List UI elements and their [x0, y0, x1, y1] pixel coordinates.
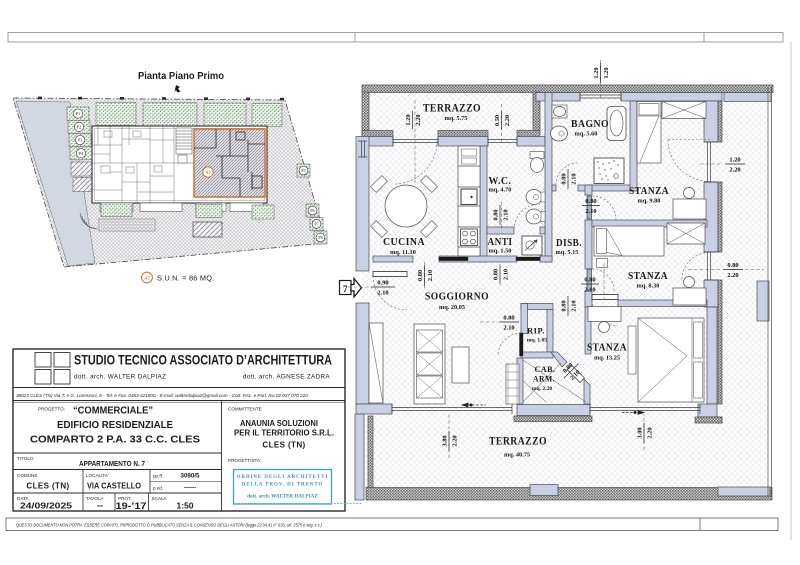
svg-text:2.10: 2.10 — [584, 287, 595, 294]
svg-text:dott. arch. AGNESE ZADRA: dott. arch. AGNESE ZADRA — [243, 374, 331, 381]
svg-text:mq. 1.05: mq. 1.05 — [527, 338, 548, 344]
svg-text:mq. 5.60: mq. 5.60 — [575, 131, 598, 138]
svg-text:0.80: 0.80 — [727, 262, 738, 269]
svg-text:P5: P5 — [301, 168, 305, 173]
svg-text:P7: P7 — [314, 222, 318, 227]
svg-text:1:50: 1:50 — [176, 501, 193, 511]
svg-text:“COMMERCIALE”: “COMMERCIALE” — [73, 406, 153, 417]
svg-text:1.20: 1.20 — [729, 157, 740, 164]
svg-text:24/09/2025: 24/09/2025 — [20, 501, 72, 511]
svg-text:3090/5: 3090/5 — [181, 473, 200, 480]
svg-text:CAB.: CAB. — [535, 364, 556, 374]
svg-text:1.20: 1.20 — [603, 67, 610, 78]
svg-text:P1: P1 — [76, 111, 80, 116]
svg-text:COMMITTENTE: COMMITTENTE — [228, 407, 262, 412]
svg-text:STANZA: STANZA — [629, 185, 669, 197]
svg-text:dott. arch. WALTER DALPIAZ: dott. arch. WALTER DALPIAZ — [247, 494, 318, 500]
svg-text:mq. 8.30: mq. 8.30 — [637, 283, 660, 290]
svg-text:mq. 5.15: mq. 5.15 — [556, 249, 579, 256]
svg-text:--: -- — [97, 501, 103, 511]
svg-text:2.20: 2.20 — [452, 435, 459, 446]
svg-text:0.80: 0.80 — [561, 300, 568, 311]
svg-text:TITOLO: TITOLO — [17, 456, 34, 461]
svg-text:pp.ff.: pp.ff. — [153, 474, 163, 479]
svg-text:BAGNO: BAGNO — [571, 119, 609, 130]
svg-text:0.80: 0.80 — [585, 198, 596, 205]
svg-text:0.80: 0.80 — [417, 270, 424, 281]
svg-text:mq. 13.25: mq. 13.25 — [594, 355, 620, 362]
svg-text:2.20: 2.20 — [504, 115, 511, 126]
svg-text:2.10: 2.10 — [571, 173, 578, 184]
svg-text:2.10: 2.10 — [503, 269, 510, 280]
svg-text:mq. 4.70: mq. 4.70 — [489, 187, 512, 194]
svg-text:ARM.: ARM. — [533, 374, 555, 384]
svg-text:ANAUNIA SOLUZIONI: ANAUNIA SOLUZIONI — [240, 419, 318, 428]
svg-text:P2: P2 — [77, 124, 81, 129]
svg-text:mq. 2.20: mq. 2.20 — [532, 386, 553, 392]
svg-text:2.10: 2.10 — [377, 290, 388, 297]
svg-text:2.20: 2.20 — [647, 427, 654, 438]
svg-text:1.20: 1.20 — [593, 67, 600, 78]
svg-text:STUDIO TECNICO ASSOCIATO D’: STUDIO TECNICO ASSOCIATO D’ARCHITETTURA — [74, 353, 332, 368]
svg-text:7: 7 — [343, 284, 348, 294]
svg-text:DISB.: DISB. — [556, 238, 582, 249]
svg-text:VIA CASTELLO: VIA CASTELLO — [87, 482, 141, 491]
svg-text:STANZA: STANZA — [587, 342, 627, 354]
svg-text:1.20: 1.20 — [405, 114, 412, 125]
svg-text:2.20: 2.20 — [415, 114, 422, 125]
svg-text:mq. 9.80: mq. 9.80 — [638, 198, 661, 205]
svg-text:PROGETTO:: PROGETTO: — [38, 407, 65, 412]
svg-text:CLES (TN): CLES (TN) — [262, 441, 305, 450]
svg-text:QUESTO DOCUMENTO NON POTRA’: QUESTO DOCUMENTO NON POTRA’ ESSERE COPIA… — [16, 522, 322, 527]
svg-text:RIP.: RIP. — [527, 326, 545, 336]
svg-text:0.80: 0.80 — [493, 269, 500, 280]
svg-text:2.20: 2.20 — [727, 272, 738, 279]
svg-text:------: ------ — [184, 485, 196, 492]
svg-text:ANTI: ANTI — [488, 237, 513, 248]
svg-text:Pianta Piano Primo: Pianta Piano Primo — [138, 70, 224, 82]
svg-text:STANZA: STANZA — [628, 270, 668, 282]
svg-text:0.50: 0.50 — [494, 115, 501, 126]
svg-text:0.80: 0.80 — [561, 173, 568, 184]
svg-text:0.80: 0.80 — [503, 315, 514, 322]
svg-text:0.80: 0.80 — [584, 277, 595, 284]
svg-text:p.ed.: p.ed. — [153, 486, 163, 491]
svg-text:mq. 5.75: mq. 5.75 — [445, 115, 468, 122]
svg-text:mq. 40.75: mq. 40.75 — [504, 452, 530, 459]
svg-text:19-’17: 19-’17 — [116, 501, 147, 511]
svg-text:0.90: 0.90 — [377, 280, 388, 287]
svg-text:COMUNE: COMUNE — [17, 473, 37, 478]
svg-text:TERRAZZO: TERRAZZO — [423, 103, 481, 115]
svg-text:PROGETTISTA:: PROGETTISTA: — [228, 458, 261, 463]
svg-text:2.10: 2.10 — [503, 325, 514, 332]
svg-text:0.80: 0.80 — [493, 209, 500, 220]
svg-text:ORDINE DEGLI ARCHITETTI: ORDINE DEGLI ARCHITETTI — [237, 475, 329, 480]
svg-text:CLES (TN): CLES (TN) — [26, 482, 69, 491]
svg-text:APPARTAMENTO N. 7: APPARTAMENTO N. 7 — [79, 459, 145, 468]
svg-text:2.10: 2.10 — [503, 209, 510, 220]
svg-text:S.U.N. = 86 MQ.: S.U.N. = 86 MQ. — [157, 274, 214, 283]
svg-text:2.20: 2.20 — [729, 167, 740, 174]
svg-text:2.10: 2.10 — [427, 270, 434, 281]
svg-text:EDIFICIO RESIDENZIALE: EDIFICIO RESIDENZIALE — [57, 420, 173, 431]
svg-text:A7: A7 — [205, 170, 211, 175]
svg-text:2.10: 2.10 — [571, 300, 578, 311]
svg-text:SOGGIORNO: SOGGIORNO — [425, 291, 489, 303]
svg-text:PER IL TERRITORIO S.R.L.: PER IL TERRITORIO S.R.L. — [234, 429, 334, 438]
svg-text:DELLA PROV. DI TRENTO: DELLA PROV. DI TRENTO — [242, 483, 324, 488]
svg-text:TERRAZZO: TERRAZZO — [489, 436, 547, 448]
svg-text:mq. 1.50: mq. 1.50 — [489, 248, 512, 255]
svg-text:dott. arch. WALTER DALPIAZ: dott. arch. WALTER DALPIAZ — [74, 374, 166, 381]
svg-text:3.80: 3.80 — [442, 435, 449, 446]
svg-text:COMPARTO 2 P.A. 33 C.C. C: COMPARTO 2 P.A. 33 C.C. CLES — [30, 434, 200, 446]
svg-text:38023 CLES (TN) Via T. e: 38023 CLES (TN) Via T. e G. Lorenzoni, 8… — [16, 393, 308, 398]
svg-text:2.10: 2.10 — [585, 208, 596, 215]
svg-text:LOCALITA’: LOCALITA’ — [86, 473, 109, 478]
svg-text:W.C.: W.C. — [489, 176, 512, 187]
svg-text:CUCINA: CUCINA — [383, 237, 425, 248]
svg-text:3.00: 3.00 — [637, 427, 644, 438]
svg-text:P6: P6 — [310, 208, 314, 213]
svg-text:mq. 11.10: mq. 11.10 — [390, 249, 416, 256]
svg-text:SCALA: SCALA — [152, 496, 168, 501]
svg-text:A7: A7 — [144, 275, 150, 280]
svg-text:P8: P8 — [318, 235, 322, 240]
svg-text:P3: P3 — [78, 138, 82, 143]
svg-text:mq. 20.05: mq. 20.05 — [439, 304, 465, 311]
